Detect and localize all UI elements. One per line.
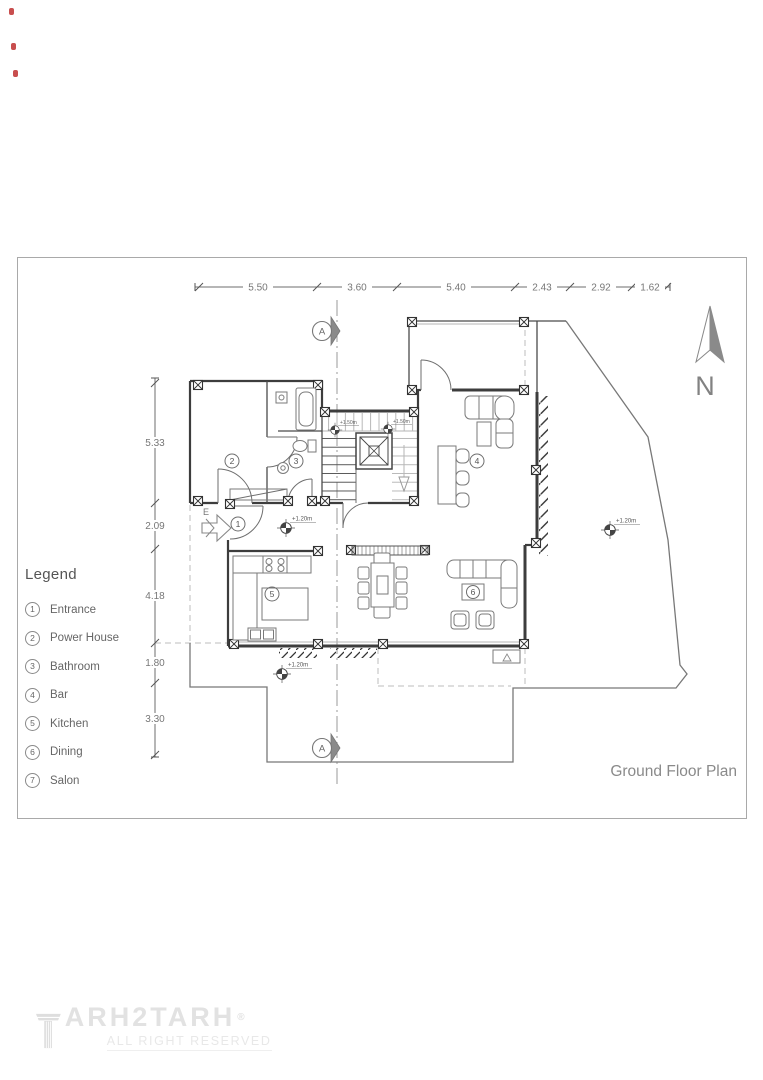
legend-item-entrance: 1 Entrance xyxy=(25,603,119,616)
room-tag-bar: 4 xyxy=(475,456,480,466)
footer-logo: ARH2TARH® ALL RIGHT RESERVED xyxy=(36,1002,296,1060)
dim-top-6: 1.62 xyxy=(640,283,660,294)
page-title: Ground Floor Plan xyxy=(610,763,737,781)
legend-label: Dining xyxy=(50,746,83,758)
dim-top-4: 2.43 xyxy=(532,283,552,294)
level-yard: +1.20m xyxy=(616,519,636,525)
legend-title: Legend xyxy=(25,566,119,583)
dim-top-5: 2.92 xyxy=(591,283,611,294)
legend: Legend 1 Entrance 2 Power House 3 Bathro… xyxy=(25,566,119,803)
legend-num: 5 xyxy=(25,716,40,731)
room-tag-dining: 6 xyxy=(471,587,476,597)
legend-item-kitchen: 5 Kitchen xyxy=(25,717,119,730)
outdoor-unit xyxy=(493,650,520,663)
level-south: +1.20m xyxy=(288,663,308,669)
legend-label: Entrance xyxy=(50,604,96,616)
legend-item-dining: 6 Dining xyxy=(25,746,119,759)
legend-num: 1 xyxy=(25,602,40,617)
entrance-arrow: E xyxy=(202,507,231,541)
section-marker-bottom: A xyxy=(313,734,341,762)
level-hall: +1.20m xyxy=(292,517,312,523)
room-tag-power-house: 2 xyxy=(230,456,235,466)
salon-furniture xyxy=(447,560,517,629)
legend-num: 3 xyxy=(25,659,40,674)
legend-item-salon: 7 Salon xyxy=(25,774,119,787)
dim-left-4: 1.80 xyxy=(145,658,165,669)
legend-num: 2 xyxy=(25,631,40,646)
column-logo-icon xyxy=(36,1002,61,1060)
dining-furniture xyxy=(352,546,428,618)
north-label: N xyxy=(695,371,715,401)
dim-left-5: 3.30 xyxy=(145,714,165,725)
legend-num: 4 xyxy=(25,688,40,703)
bar-furniture xyxy=(438,396,514,507)
legend-label: Bathroom xyxy=(50,661,100,673)
brand-name: ARH2TARH xyxy=(65,1002,236,1032)
legend-num: 7 xyxy=(25,773,40,788)
dim-left-1: 5.33 xyxy=(145,438,165,449)
legend-item-power-house: 2 Power House xyxy=(25,632,119,645)
registered-mark: ® xyxy=(237,1012,244,1023)
section-label: A xyxy=(319,327,326,338)
dim-left-3: 4.18 xyxy=(145,591,165,602)
legend-label: Bar xyxy=(50,689,68,701)
section-marker-top: A xyxy=(313,317,341,345)
legend-item-bathroom: 3 Bathroom xyxy=(25,660,119,673)
legend-num: 6 xyxy=(25,745,40,760)
entrance-direction-label: E xyxy=(203,507,209,517)
room-tag-kitchen: 5 xyxy=(270,589,275,599)
section-label: A xyxy=(319,744,326,755)
top-dimensions: 5.50 3.60 5.40 2.43 2.92 1.62 xyxy=(195,281,671,294)
legend-label: Salon xyxy=(50,775,79,787)
legend-label: Kitchen xyxy=(50,718,88,730)
legend-item-bar: 4 Bar xyxy=(25,689,119,702)
brand-tagline: ALL RIGHT RESERVED xyxy=(107,1034,272,1051)
reference-lines xyxy=(155,300,525,788)
dim-left-2: 2.09 xyxy=(145,521,165,532)
room-tag-bathroom: 3 xyxy=(294,456,299,466)
left-dimensions: 5.33 2.09 4.18 1.80 3.30 xyxy=(140,378,170,759)
level-stair-right: +1.50m xyxy=(393,419,410,425)
dim-top-1: 5.50 xyxy=(248,283,268,294)
legend-label: Power House xyxy=(50,632,119,644)
room-tag-entrance: 1 xyxy=(236,519,241,529)
north-arrow-icon: N xyxy=(695,306,724,401)
dim-top-3: 5.40 xyxy=(446,283,466,294)
site-boundary xyxy=(190,321,687,762)
dim-top-2: 3.60 xyxy=(347,283,367,294)
floor-plan-drawing: 1 2 3 4 5 6 E +1.20m +1.20m +1.20m xyxy=(0,0,763,1080)
level-stair-left: +1.50m xyxy=(340,420,357,426)
